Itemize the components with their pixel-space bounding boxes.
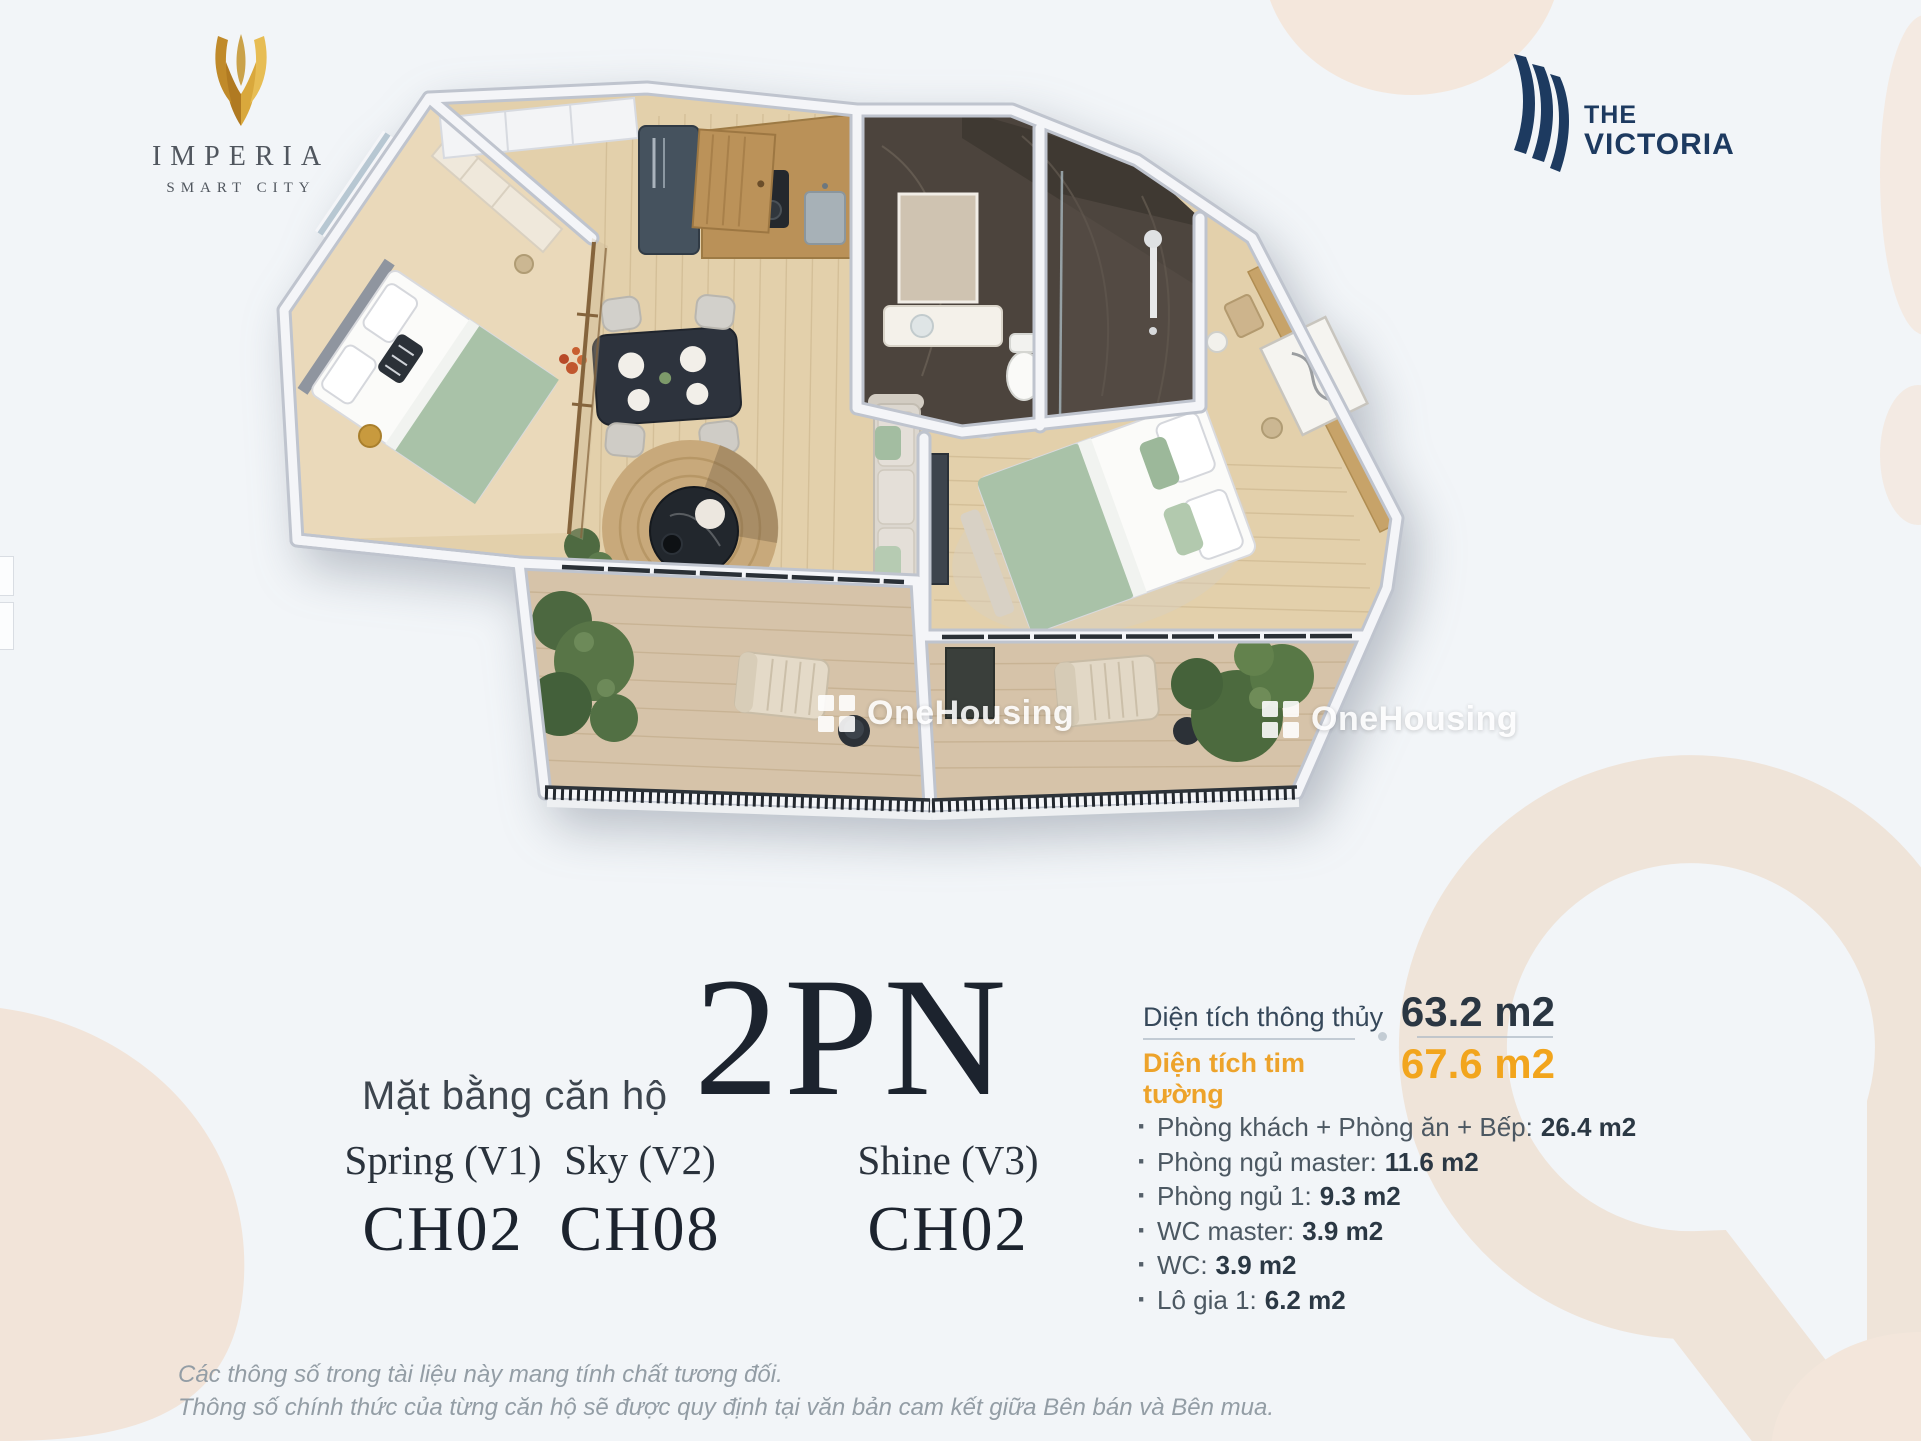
room-label: WC master:: [1157, 1216, 1294, 1247]
variant-code: CH08: [560, 1192, 721, 1266]
room-item: Lô gia 1: 6.2 m2: [1137, 1283, 1636, 1318]
room-list: Phòng khách + Phòng ăn + Bếp: 26.4 m2 Ph…: [1137, 1110, 1636, 1317]
dining-table: [592, 326, 742, 426]
watermark-2: OneHousing: [1262, 700, 1518, 739]
page-background: IMPERIA SMART CITY THE VICTORIA: [0, 0, 1921, 1441]
floor-plan: [262, 76, 1412, 861]
room-value: 11.6 m2: [1385, 1147, 1479, 1178]
room-item: WC master: 3.9 m2: [1137, 1214, 1636, 1249]
variant-name: Spring (V1): [344, 1136, 541, 1184]
room-value: 3.9 m2: [1216, 1250, 1297, 1281]
area-gross-value: 67.6 m2: [1370, 1040, 1555, 1088]
edge-fragment: [0, 602, 14, 650]
area-gross-label: Diện tích tim tường: [1143, 1048, 1393, 1110]
area-net-value: 63.2 m2: [1370, 988, 1555, 1036]
balcony-1: [519, 563, 930, 806]
mirror: [899, 194, 977, 302]
victoria-name: VICTORIA: [1584, 129, 1735, 161]
area-net-label: Diện tích thông thủy: [1143, 1002, 1393, 1033]
victoria-the: THE: [1584, 102, 1735, 129]
watermark-text: OneHousing: [867, 694, 1074, 733]
victoria-sails-icon: [1510, 54, 1570, 176]
window-grid-icon: [1262, 701, 1300, 739]
variant-code: CH02: [857, 1192, 1038, 1266]
room-label: Phòng ngủ 1:: [1157, 1181, 1312, 1212]
room-item: Phòng ngủ master: 11.6 m2: [1137, 1145, 1636, 1180]
lamp: [1207, 332, 1227, 352]
coffee-table: [650, 487, 738, 575]
vanity: [884, 306, 1002, 346]
room-value: 26.4 m2: [1541, 1112, 1636, 1143]
lounge-chair: [734, 651, 830, 720]
room-value: 9.3 m2: [1320, 1181, 1401, 1212]
watermark-text: OneHousing: [1311, 700, 1518, 739]
room-label: Lô gia 1:: [1157, 1285, 1257, 1316]
room-label: Phòng khách + Phòng ăn + Bếp:: [1157, 1112, 1533, 1143]
edge-fragment: [0, 556, 14, 596]
sink: [805, 192, 845, 244]
disclaimer-line-2: Thông số chính thức của từng căn hộ sẽ đ…: [178, 1391, 1274, 1424]
room-item: WC: 3.9 m2: [1137, 1248, 1636, 1283]
area-divider-line: [1143, 1038, 1355, 1040]
room-value: 3.9 m2: [1302, 1216, 1383, 1247]
variant-column-sky: Sky (V2) CH08: [560, 1136, 721, 1266]
entry-door: [693, 129, 776, 232]
plan-title-highlight: 2PN: [694, 952, 1011, 1122]
room-value: 6.2 m2: [1265, 1285, 1346, 1316]
variant-column-spring: Spring (V1) CH02: [344, 1136, 541, 1266]
window-grid-icon: [818, 695, 856, 733]
room-label: Phòng ngủ master:: [1157, 1147, 1377, 1178]
victoria-logo: THE VICTORIA: [1510, 54, 1735, 176]
watermark-1: OneHousing: [818, 694, 1074, 733]
area-divider-line: [1417, 1036, 1553, 1038]
plan-title: Mặt bằng căn hộ: [362, 1074, 668, 1119]
fridge: [639, 126, 699, 254]
room-label: WC:: [1157, 1250, 1208, 1281]
room-item: Phòng khách + Phòng ăn + Bếp: 26.4 m2: [1137, 1110, 1636, 1145]
disclaimer-line-1: Các thông số trong tài liệu này mang tín…: [178, 1358, 1274, 1391]
room-item: Phòng ngủ 1: 9.3 m2: [1137, 1179, 1636, 1214]
disclaimer: Các thông số trong tài liệu này mang tín…: [178, 1358, 1274, 1424]
variant-name: Shine (V3): [857, 1136, 1038, 1184]
variant-column-shine: Shine (V3) CH02: [857, 1136, 1038, 1266]
variant-name: Sky (V2): [560, 1136, 721, 1184]
bathrooms: [857, 110, 1200, 432]
variant-code: CH02: [344, 1192, 541, 1266]
